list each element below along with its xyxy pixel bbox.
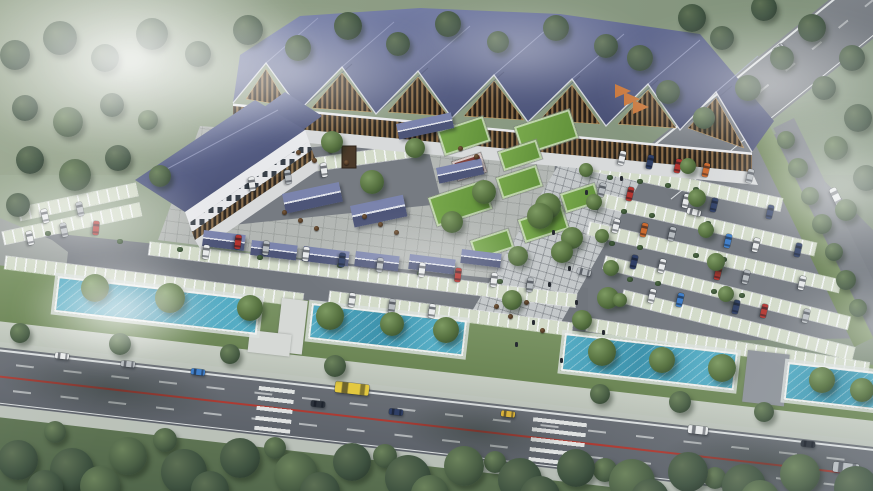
parking-lot-northwest-asphalt — [0, 0, 873, 491]
tree — [10, 323, 30, 343]
car — [526, 278, 534, 293]
tree — [27, 470, 63, 491]
tree — [191, 471, 229, 491]
tree — [710, 26, 734, 50]
tree — [669, 391, 691, 413]
car — [76, 202, 85, 217]
tree — [109, 437, 147, 475]
tree — [80, 466, 120, 491]
tree — [770, 46, 794, 70]
tree — [385, 455, 431, 491]
tree — [0, 40, 30, 70]
lane-marking-dashed — [0, 359, 873, 469]
parking-lot-east-asphalt — [0, 0, 873, 491]
shrub — [337, 263, 343, 268]
tree — [613, 293, 627, 307]
car — [338, 253, 346, 268]
tree — [693, 107, 715, 129]
pedestrian — [602, 330, 605, 335]
car — [284, 170, 292, 185]
tree — [109, 333, 131, 355]
car — [732, 300, 741, 315]
tree — [836, 270, 856, 290]
car — [626, 187, 635, 202]
lawn-patch — [560, 183, 600, 213]
pavilion-roof — [408, 254, 455, 274]
center-line-red — [0, 372, 873, 481]
tree — [609, 459, 655, 491]
road-edge-line — [0, 346, 873, 455]
pavilion-roof — [250, 240, 297, 260]
main-road — [0, 344, 873, 491]
gable-timber-fronts — [246, 69, 744, 148]
ground-layer — [0, 0, 873, 491]
tree — [316, 302, 344, 330]
cafe-table — [494, 304, 499, 309]
color-grade-overlay — [0, 0, 873, 491]
car — [714, 266, 723, 281]
car — [202, 245, 210, 260]
lawn-patch — [437, 116, 491, 156]
walkway-path — [248, 330, 292, 357]
reflecting-pool — [784, 362, 873, 412]
car — [746, 169, 755, 184]
cafe-table — [394, 230, 399, 235]
cafe-table — [298, 218, 303, 223]
fog-cloud — [20, 255, 220, 365]
tree — [149, 165, 171, 187]
fog-cloud — [600, 10, 873, 160]
tree — [360, 170, 384, 194]
pedestrian — [568, 266, 571, 271]
tree — [81, 274, 109, 302]
pedestrian — [545, 213, 548, 218]
pavilion-roof — [354, 251, 400, 271]
car — [388, 299, 396, 314]
tree — [593, 458, 617, 482]
shrub — [607, 175, 613, 180]
fog-cloud — [150, 10, 450, 140]
tree — [788, 158, 808, 178]
entry-drive-west — [0, 0, 873, 491]
tree — [631, 479, 669, 491]
fog-cloud — [760, 280, 873, 380]
walkway-path — [742, 350, 790, 406]
street-east — [773, 118, 873, 353]
car — [798, 276, 807, 291]
car — [658, 259, 667, 274]
tree — [707, 253, 725, 271]
lower-sidewalk — [0, 402, 873, 491]
tree — [324, 355, 346, 377]
tree — [185, 41, 211, 67]
car — [736, 76, 748, 87]
cafe-table — [314, 226, 319, 231]
tree — [597, 287, 619, 309]
tree — [561, 227, 583, 249]
car — [833, 462, 860, 475]
shrub — [665, 183, 671, 188]
cafe-table — [378, 222, 383, 227]
parking-stall-row — [328, 291, 573, 336]
tree — [44, 421, 66, 443]
car — [41, 209, 50, 224]
tree — [844, 104, 872, 132]
pavilion-roof — [302, 246, 349, 266]
tree — [853, 165, 873, 191]
tree — [834, 466, 873, 491]
shrub — [693, 187, 699, 192]
parking-stall-row — [2, 203, 142, 245]
tree — [812, 214, 832, 234]
highway-northeast — [636, 0, 873, 201]
parking-stall-row — [603, 256, 851, 330]
shrub — [705, 221, 711, 226]
crosswalk — [254, 382, 295, 434]
tree — [136, 18, 168, 50]
tree — [220, 344, 240, 364]
car — [646, 155, 655, 170]
car — [26, 231, 35, 246]
tree — [333, 443, 371, 481]
tree — [649, 347, 675, 373]
tree — [850, 378, 873, 402]
tree-shadow — [391, 393, 566, 470]
car — [668, 227, 677, 242]
tree — [535, 193, 561, 219]
tree — [718, 286, 734, 302]
car — [710, 198, 719, 213]
parking-stall-row — [586, 318, 870, 375]
cafe-table — [312, 158, 317, 163]
fog-cloud — [0, 160, 220, 280]
west-building-facade — [185, 130, 309, 223]
car — [334, 381, 369, 396]
tree — [105, 145, 131, 171]
car — [752, 238, 761, 253]
tree — [435, 11, 461, 37]
tree — [100, 93, 124, 117]
tree — [835, 199, 857, 221]
shrub — [257, 255, 263, 260]
tree — [594, 34, 618, 58]
fog-cloud — [300, 215, 560, 305]
car — [501, 410, 516, 418]
shrub — [621, 209, 627, 214]
fog-cloud — [390, 0, 650, 100]
lawn-patch — [470, 229, 514, 260]
objects-layer — [0, 0, 873, 491]
car — [772, 42, 784, 53]
fog-cloud — [0, 0, 320, 170]
tree — [656, 80, 680, 104]
pedestrian — [585, 190, 588, 195]
shrub — [649, 213, 655, 218]
shrub — [417, 271, 423, 276]
west-building-upper-roof — [225, 92, 322, 160]
car — [801, 440, 816, 448]
cafe-table — [458, 146, 463, 151]
parking-stall-row — [621, 290, 855, 360]
car — [794, 243, 803, 258]
car — [428, 304, 436, 319]
tree — [678, 4, 706, 32]
tree — [411, 475, 449, 491]
tree — [543, 15, 569, 41]
landscape-layer — [0, 0, 873, 491]
roof-dormer-triangles — [615, 84, 649, 114]
shrub — [117, 239, 123, 244]
car — [576, 267, 591, 276]
tree — [801, 187, 819, 205]
tree — [668, 452, 708, 491]
car — [121, 360, 136, 368]
car — [348, 293, 356, 308]
tree-shadow — [659, 423, 873, 491]
reflecting-pool — [561, 333, 738, 390]
tree — [274, 452, 318, 491]
cafe-table — [344, 160, 349, 165]
car — [630, 255, 639, 270]
west-building-windows — [189, 141, 312, 232]
pedestrian-plaza — [0, 0, 873, 491]
main-building-roof — [233, 8, 774, 152]
tree — [153, 428, 177, 452]
tree — [300, 472, 340, 491]
tree — [43, 21, 77, 55]
reflecting-pool — [54, 276, 261, 335]
car — [191, 368, 206, 376]
parking-stall-row — [215, 144, 415, 185]
pedestrian — [560, 248, 563, 253]
tree — [740, 480, 780, 491]
shrub — [637, 179, 643, 184]
tree — [487, 31, 509, 53]
parking-stall-row — [589, 158, 782, 211]
pedestrian — [575, 300, 578, 305]
parking-stall-row — [148, 242, 576, 307]
car — [648, 289, 657, 304]
cafe-table — [282, 210, 287, 215]
walkway-path — [276, 298, 308, 355]
car — [612, 219, 621, 234]
lane-marking-dashed — [0, 385, 873, 491]
car — [682, 194, 691, 209]
car — [618, 151, 627, 166]
tree — [50, 448, 94, 491]
crosswalk — [528, 413, 587, 467]
tree — [809, 367, 835, 393]
shrub — [45, 231, 51, 236]
lawn-patch — [498, 140, 542, 171]
pedestrian — [515, 342, 518, 347]
fog-cloud — [700, 105, 873, 265]
tree — [508, 246, 528, 266]
car — [55, 352, 70, 360]
tree — [380, 312, 404, 336]
tree — [798, 14, 826, 42]
tree — [825, 243, 843, 261]
frontage-drive-asphalt — [0, 0, 873, 491]
car — [742, 270, 751, 285]
car — [829, 186, 843, 205]
car — [760, 304, 769, 319]
shrub — [655, 281, 661, 286]
car — [418, 263, 426, 278]
shrub — [497, 279, 503, 284]
tree — [155, 283, 185, 313]
tree — [264, 437, 286, 459]
car — [248, 177, 256, 192]
feature-tower — [342, 146, 356, 168]
tree — [334, 12, 362, 40]
tree — [735, 75, 761, 101]
shrub — [627, 277, 633, 282]
tree — [751, 0, 777, 21]
shrub — [609, 241, 615, 246]
tree — [586, 194, 602, 210]
tree — [16, 146, 44, 174]
tree — [780, 454, 820, 491]
parking-stall-row — [4, 256, 303, 306]
lawn-patch — [428, 180, 492, 226]
shrub — [177, 247, 183, 252]
tree — [704, 467, 726, 489]
west-roof-ridge — [150, 110, 278, 178]
car — [454, 268, 462, 283]
cafe-table — [540, 328, 545, 333]
shrub — [739, 293, 745, 298]
car — [320, 163, 328, 178]
tree — [698, 222, 714, 238]
car — [389, 408, 404, 416]
tree — [12, 95, 38, 121]
tree — [386, 32, 410, 56]
tree — [0, 440, 38, 480]
parking-stall-row — [575, 188, 817, 256]
pool-grass-band — [0, 262, 873, 445]
pedestrian — [552, 230, 555, 235]
car — [490, 273, 498, 288]
tree — [91, 44, 119, 72]
fog-layer — [0, 0, 873, 491]
lawn-patch — [514, 109, 578, 155]
facade-white-trim — [233, 104, 752, 158]
shrub — [593, 205, 599, 210]
car — [686, 207, 701, 216]
road-edge-line — [0, 398, 873, 491]
green-fields — [0, 0, 873, 175]
eave-trim — [233, 63, 752, 152]
car — [724, 234, 733, 249]
tree — [557, 449, 595, 487]
tree — [588, 338, 616, 366]
median-sidewalk — [0, 318, 873, 452]
pedestrian — [548, 282, 551, 287]
pedestrian — [560, 358, 563, 363]
tree — [161, 449, 207, 491]
trees-layer — [0, 0, 873, 491]
tree — [572, 310, 592, 330]
cafe-table — [474, 154, 479, 159]
tree — [321, 131, 343, 153]
west-building-timber-band — [192, 150, 315, 240]
pavilion-roof — [202, 230, 246, 251]
tree — [444, 446, 484, 486]
shrub — [693, 253, 699, 258]
tree — [502, 290, 522, 310]
cafe-table — [508, 314, 513, 319]
building-front-walk — [233, 123, 758, 185]
tree — [237, 295, 263, 321]
main-building-facade — [233, 106, 752, 172]
pavilion-roof — [396, 112, 454, 139]
car — [60, 223, 69, 238]
tree — [824, 136, 848, 160]
tree — [551, 241, 573, 263]
reflecting-pool — [308, 303, 467, 356]
car — [376, 258, 384, 273]
lawn-patch — [518, 206, 569, 243]
shrub — [711, 289, 717, 294]
shrub — [721, 257, 727, 262]
tree — [708, 354, 736, 382]
roof-valley-lines — [300, 64, 732, 130]
pavilion-roof — [350, 195, 407, 228]
pavilion-roof — [436, 158, 484, 183]
tree — [627, 45, 653, 71]
tree — [595, 229, 609, 243]
tree — [754, 402, 774, 422]
tree — [285, 35, 311, 61]
roof-ridge-lines — [266, 18, 758, 92]
car — [262, 241, 270, 256]
red-water-feature — [452, 153, 487, 181]
car — [92, 221, 99, 235]
car — [676, 293, 685, 308]
pavilion-roof — [460, 249, 501, 268]
tree — [603, 260, 619, 276]
tree — [722, 464, 766, 491]
car — [311, 400, 326, 408]
courtyard-paving — [0, 0, 873, 491]
tree — [472, 180, 496, 204]
street-east-median — [749, 122, 873, 347]
car — [640, 223, 649, 238]
tree — [6, 193, 30, 217]
tree — [680, 158, 696, 174]
tree — [590, 384, 610, 404]
parking-stall-row — [587, 222, 841, 293]
shrub — [637, 245, 643, 250]
tree-shadow — [0, 347, 228, 431]
tree — [59, 159, 91, 191]
cafe-table — [296, 150, 301, 155]
car — [702, 163, 711, 178]
car — [598, 183, 607, 198]
parking-stall-row — [18, 183, 138, 221]
tree — [220, 438, 260, 478]
cafe-table — [362, 214, 367, 219]
car — [766, 205, 775, 220]
aerial-render-scene — [0, 0, 873, 491]
tree — [484, 451, 506, 473]
tree — [53, 107, 83, 137]
lane-marking-dashed — [653, 0, 873, 178]
car — [674, 159, 683, 174]
bottom-tree-band-ground — [0, 414, 873, 491]
pedestrian — [620, 176, 623, 181]
